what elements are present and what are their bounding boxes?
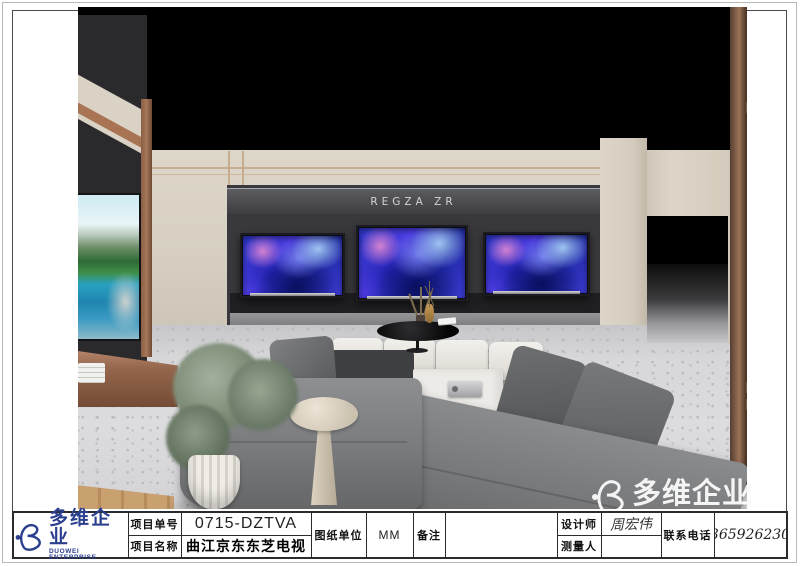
remarks-value	[445, 513, 557, 557]
white-plant-pot	[188, 455, 240, 509]
regza-sign-text: REGZA ZR	[370, 196, 456, 208]
project-no-value: 0715-DZTVA	[181, 513, 311, 535]
wood-pillar	[730, 7, 747, 491]
watermark-text: 多维企业	[632, 480, 752, 509]
showroom-render: REGZA ZR	[78, 7, 747, 509]
drawing-unit-value: MM	[366, 513, 413, 557]
duowei-logo-mark	[14, 518, 46, 552]
left-unit-wood-trim	[141, 99, 152, 357]
title-block: 多维企业 DUOWEI ENTERPRISE 项目单号 0715-DZTVA 项…	[12, 511, 788, 559]
doorway-header	[647, 150, 730, 216]
project-name-value: 曲江京东东芝电视	[181, 535, 311, 557]
eucalyptus-plant	[228, 359, 298, 433]
phone-label: 联系电话	[661, 513, 714, 557]
tv-right	[483, 232, 590, 296]
designer-value: 周宏伟	[601, 512, 662, 536]
logo-text-en: DUOWEI ENTERPRISE	[49, 549, 128, 562]
drawing-unit-label: 图纸单位	[311, 513, 366, 557]
right-wall-column	[600, 138, 647, 342]
tv-left-screen	[243, 236, 342, 295]
side-table-top	[290, 397, 358, 431]
wall-groove-line	[242, 151, 244, 189]
book-stack	[78, 363, 105, 383]
left-nature-screen	[78, 193, 141, 341]
wall-groove-line	[148, 174, 608, 175]
doorway-opening	[647, 216, 728, 264]
doorway-floor-gradient	[647, 264, 728, 343]
designer-label: 设计师	[557, 513, 601, 535]
tv-left	[240, 233, 345, 298]
duowei-logo-mark	[588, 474, 632, 514]
surveyor-value	[601, 535, 661, 557]
brand-watermark: 多维企业	[588, 474, 788, 514]
gold-vase	[425, 304, 434, 323]
phone-value: 13659262305	[714, 513, 786, 557]
wall-groove-line	[228, 151, 230, 189]
remarks-label: 备注	[413, 513, 445, 557]
wall-groove-line	[148, 167, 608, 169]
project-name-label: 项目名称	[128, 535, 181, 557]
surveyor-label: 测量人	[557, 535, 601, 557]
tv-right-stand	[493, 291, 580, 294]
projector-device	[448, 381, 482, 397]
tv-right-screen	[486, 235, 587, 293]
project-no-label: 项目单号	[128, 513, 181, 535]
signage-band: REGZA ZR	[227, 188, 600, 214]
tv-left-stand	[250, 293, 335, 296]
logo-text-cn: 多维企业	[49, 509, 128, 547]
company-logo: 多维企业 DUOWEI ENTERPRISE	[14, 513, 128, 557]
